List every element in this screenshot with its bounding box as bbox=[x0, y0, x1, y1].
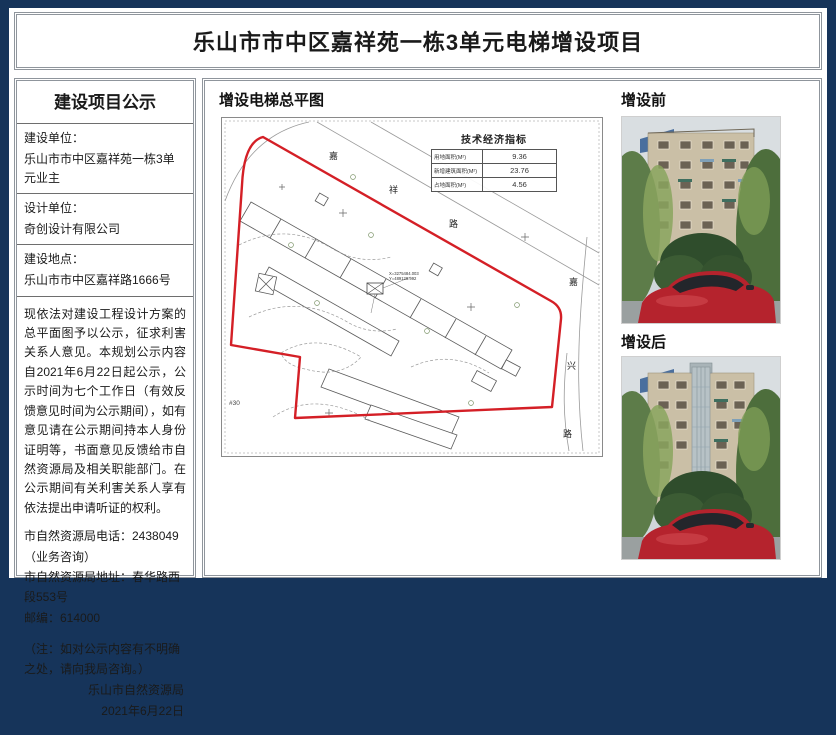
table-row: 占地面积(M²) 4.56 bbox=[432, 178, 557, 192]
field-value: 奇创设计有限公司 bbox=[24, 220, 186, 239]
before-photo-image bbox=[622, 117, 780, 323]
main-content-panel: 增设电梯总平图 bbox=[202, 78, 822, 578]
indicator-value: 4.56 bbox=[483, 178, 557, 192]
field-label: 设计单位： bbox=[24, 199, 186, 218]
field-construction-unit: 建设单位： 乐山市市中区嘉祥苑一栋3单元业主 bbox=[17, 124, 193, 194]
photo-after bbox=[621, 356, 781, 560]
title-band: 乐山市市中区嘉祥苑一栋3单元电梯增设项目 bbox=[14, 12, 822, 70]
field-design-unit: 设计单位： 奇创设计有限公司 bbox=[17, 194, 193, 245]
site-plan-heading: 增设电梯总平图 bbox=[219, 89, 324, 110]
indicator-label: 新增建筑面积(M²) bbox=[432, 164, 483, 178]
site-plan-map: 嘉 祥 路 嘉 兴 路 X=3275484.003 Y=489128.992 #… bbox=[221, 117, 603, 457]
road-label-top: 嘉 bbox=[329, 150, 338, 161]
field-value: 乐山市市中区嘉祥苑一栋3单元业主 bbox=[24, 150, 186, 187]
field-value: 乐山市市中区嘉祥路1666号 bbox=[24, 271, 186, 290]
road-label-right: 兴 bbox=[567, 361, 576, 371]
signature-date: 2021年6月22日 bbox=[26, 701, 184, 723]
signature-block: 乐山市自然资源局 2021年6月22日 bbox=[17, 680, 193, 735]
indicator-value: 9.36 bbox=[483, 150, 557, 164]
photo-before bbox=[621, 116, 781, 324]
page-title: 乐山市市中区嘉祥苑一栋3单元电梯增设项目 bbox=[193, 25, 643, 57]
table-row: 新增建筑面积(M²) 23.76 bbox=[432, 164, 557, 178]
contact-block: 市自然资源局电话：2438049（业务咨询） 市自然资源局地址：春华路西段553… bbox=[17, 524, 193, 628]
field-label: 建设地点： bbox=[24, 250, 186, 269]
road-label-top: 祥 bbox=[389, 184, 398, 195]
before-label: 增设前 bbox=[621, 89, 666, 110]
notice-note: （注：如对公示内容有不明确之处，请向我局咨询。） bbox=[17, 628, 193, 680]
notice-body: 现依法对建设工程设计方案的总平面图予以公示，征求利害关系人意见。本规划公示内容自… bbox=[17, 297, 193, 525]
notice-heading: 建设项目公示 bbox=[17, 81, 193, 124]
indicator-table: 技术经济指标 用地面积(M²) 9.36 新增建筑面积(M²) 23.76 占地… bbox=[431, 131, 557, 192]
table-row: 用地面积(M²) 9.36 bbox=[432, 150, 557, 164]
coord-y-annotation: Y=489128.992 bbox=[389, 276, 417, 281]
after-photo-image bbox=[622, 357, 780, 559]
notice-sheet: 乐山市市中区嘉祥苑一栋3单元电梯增设项目 建设项目公示 建设单位： 乐山市市中区… bbox=[9, 8, 827, 578]
public-notice-panel: 建设项目公示 建设单位： 乐山市市中区嘉祥苑一栋3单元业主 设计单位： 奇创设计… bbox=[14, 78, 196, 578]
coordinate-annotations: X=3275484.003 Y=489128.992 bbox=[389, 271, 419, 281]
indicator-table-title: 技术经济指标 bbox=[431, 131, 557, 146]
house-number-label: #30 bbox=[229, 400, 240, 407]
indicator-table-grid: 用地面积(M²) 9.36 新增建筑面积(M²) 23.76 占地面积(M²) … bbox=[431, 149, 557, 192]
indicator-label: 用地面积(M²) bbox=[432, 150, 483, 164]
road-label-top: 路 bbox=[449, 218, 458, 229]
contact-address: 市自然资源局地址：春华路西段553号 bbox=[24, 567, 186, 608]
road-label-right: 嘉 bbox=[569, 276, 578, 287]
contact-postcode: 邮编：614000 bbox=[24, 608, 186, 628]
signature-org: 乐山市自然资源局 bbox=[26, 680, 184, 702]
contact-phone: 市自然资源局电话：2438049（业务咨询） bbox=[24, 526, 186, 567]
after-label: 增设后 bbox=[621, 331, 666, 352]
indicator-label: 占地面积(M²) bbox=[432, 178, 483, 192]
field-location: 建设地点： 乐山市市中区嘉祥路1666号 bbox=[17, 245, 193, 296]
indicator-value: 23.76 bbox=[483, 164, 557, 178]
road-label-right: 路 bbox=[563, 428, 572, 439]
field-label: 建设单位： bbox=[24, 129, 186, 148]
